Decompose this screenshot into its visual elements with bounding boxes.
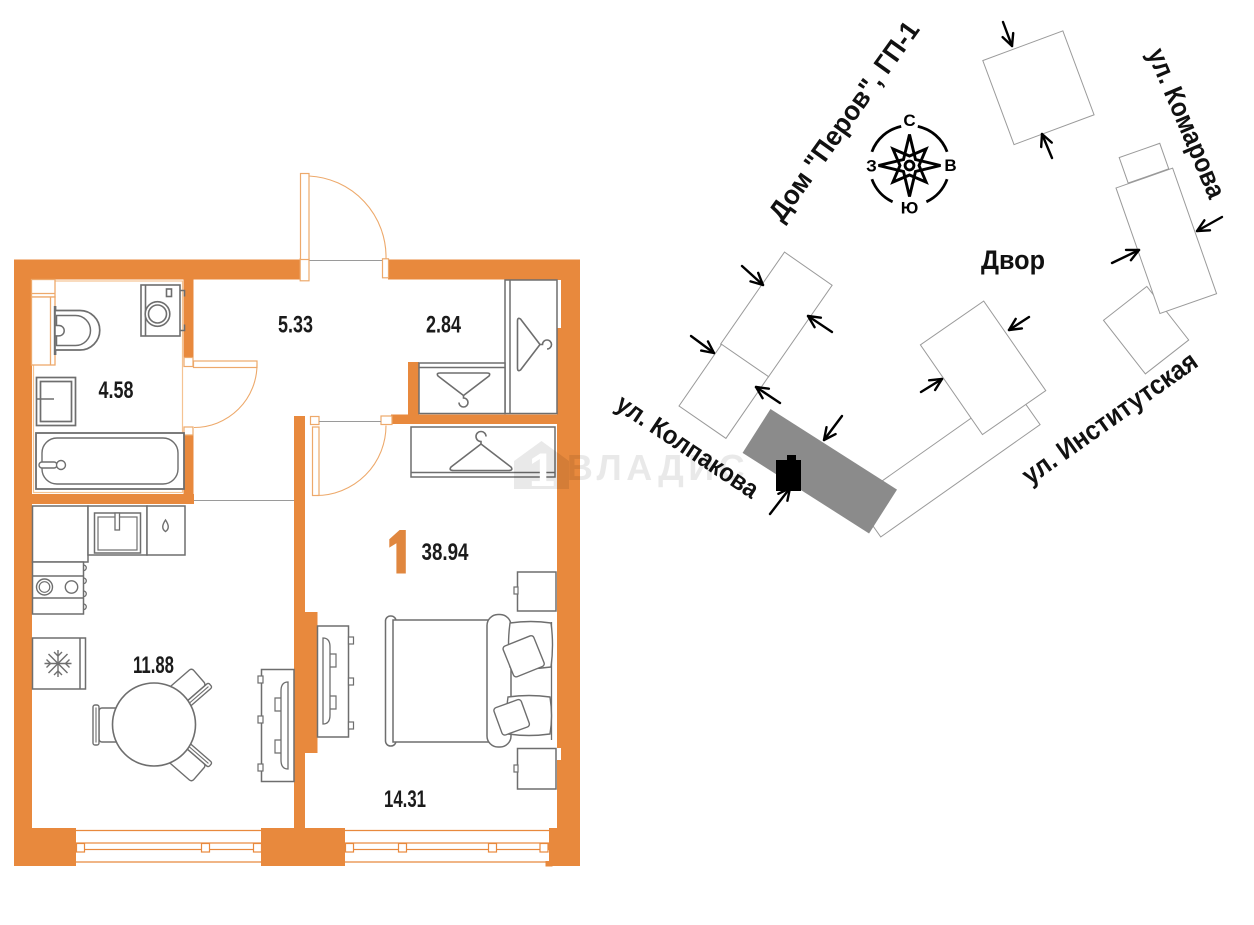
svg-text:38.94: 38.94 <box>422 539 470 566</box>
svg-text:ВЛАДИС: ВЛАДИС <box>567 447 749 488</box>
svg-text:4.58: 4.58 <box>99 377 134 404</box>
svg-text:Ю: Ю <box>901 199 919 218</box>
svg-text:11.88: 11.88 <box>133 652 174 679</box>
svg-text:В: В <box>944 156 956 175</box>
svg-text:1: 1 <box>529 443 555 496</box>
svg-text:2.84: 2.84 <box>426 312 461 339</box>
svg-text:З: З <box>866 157 877 176</box>
svg-text:5.33: 5.33 <box>278 312 313 339</box>
svg-text:14.31: 14.31 <box>384 786 426 813</box>
svg-text:Двор: Двор <box>981 245 1045 275</box>
svg-text:С: С <box>903 111 915 130</box>
